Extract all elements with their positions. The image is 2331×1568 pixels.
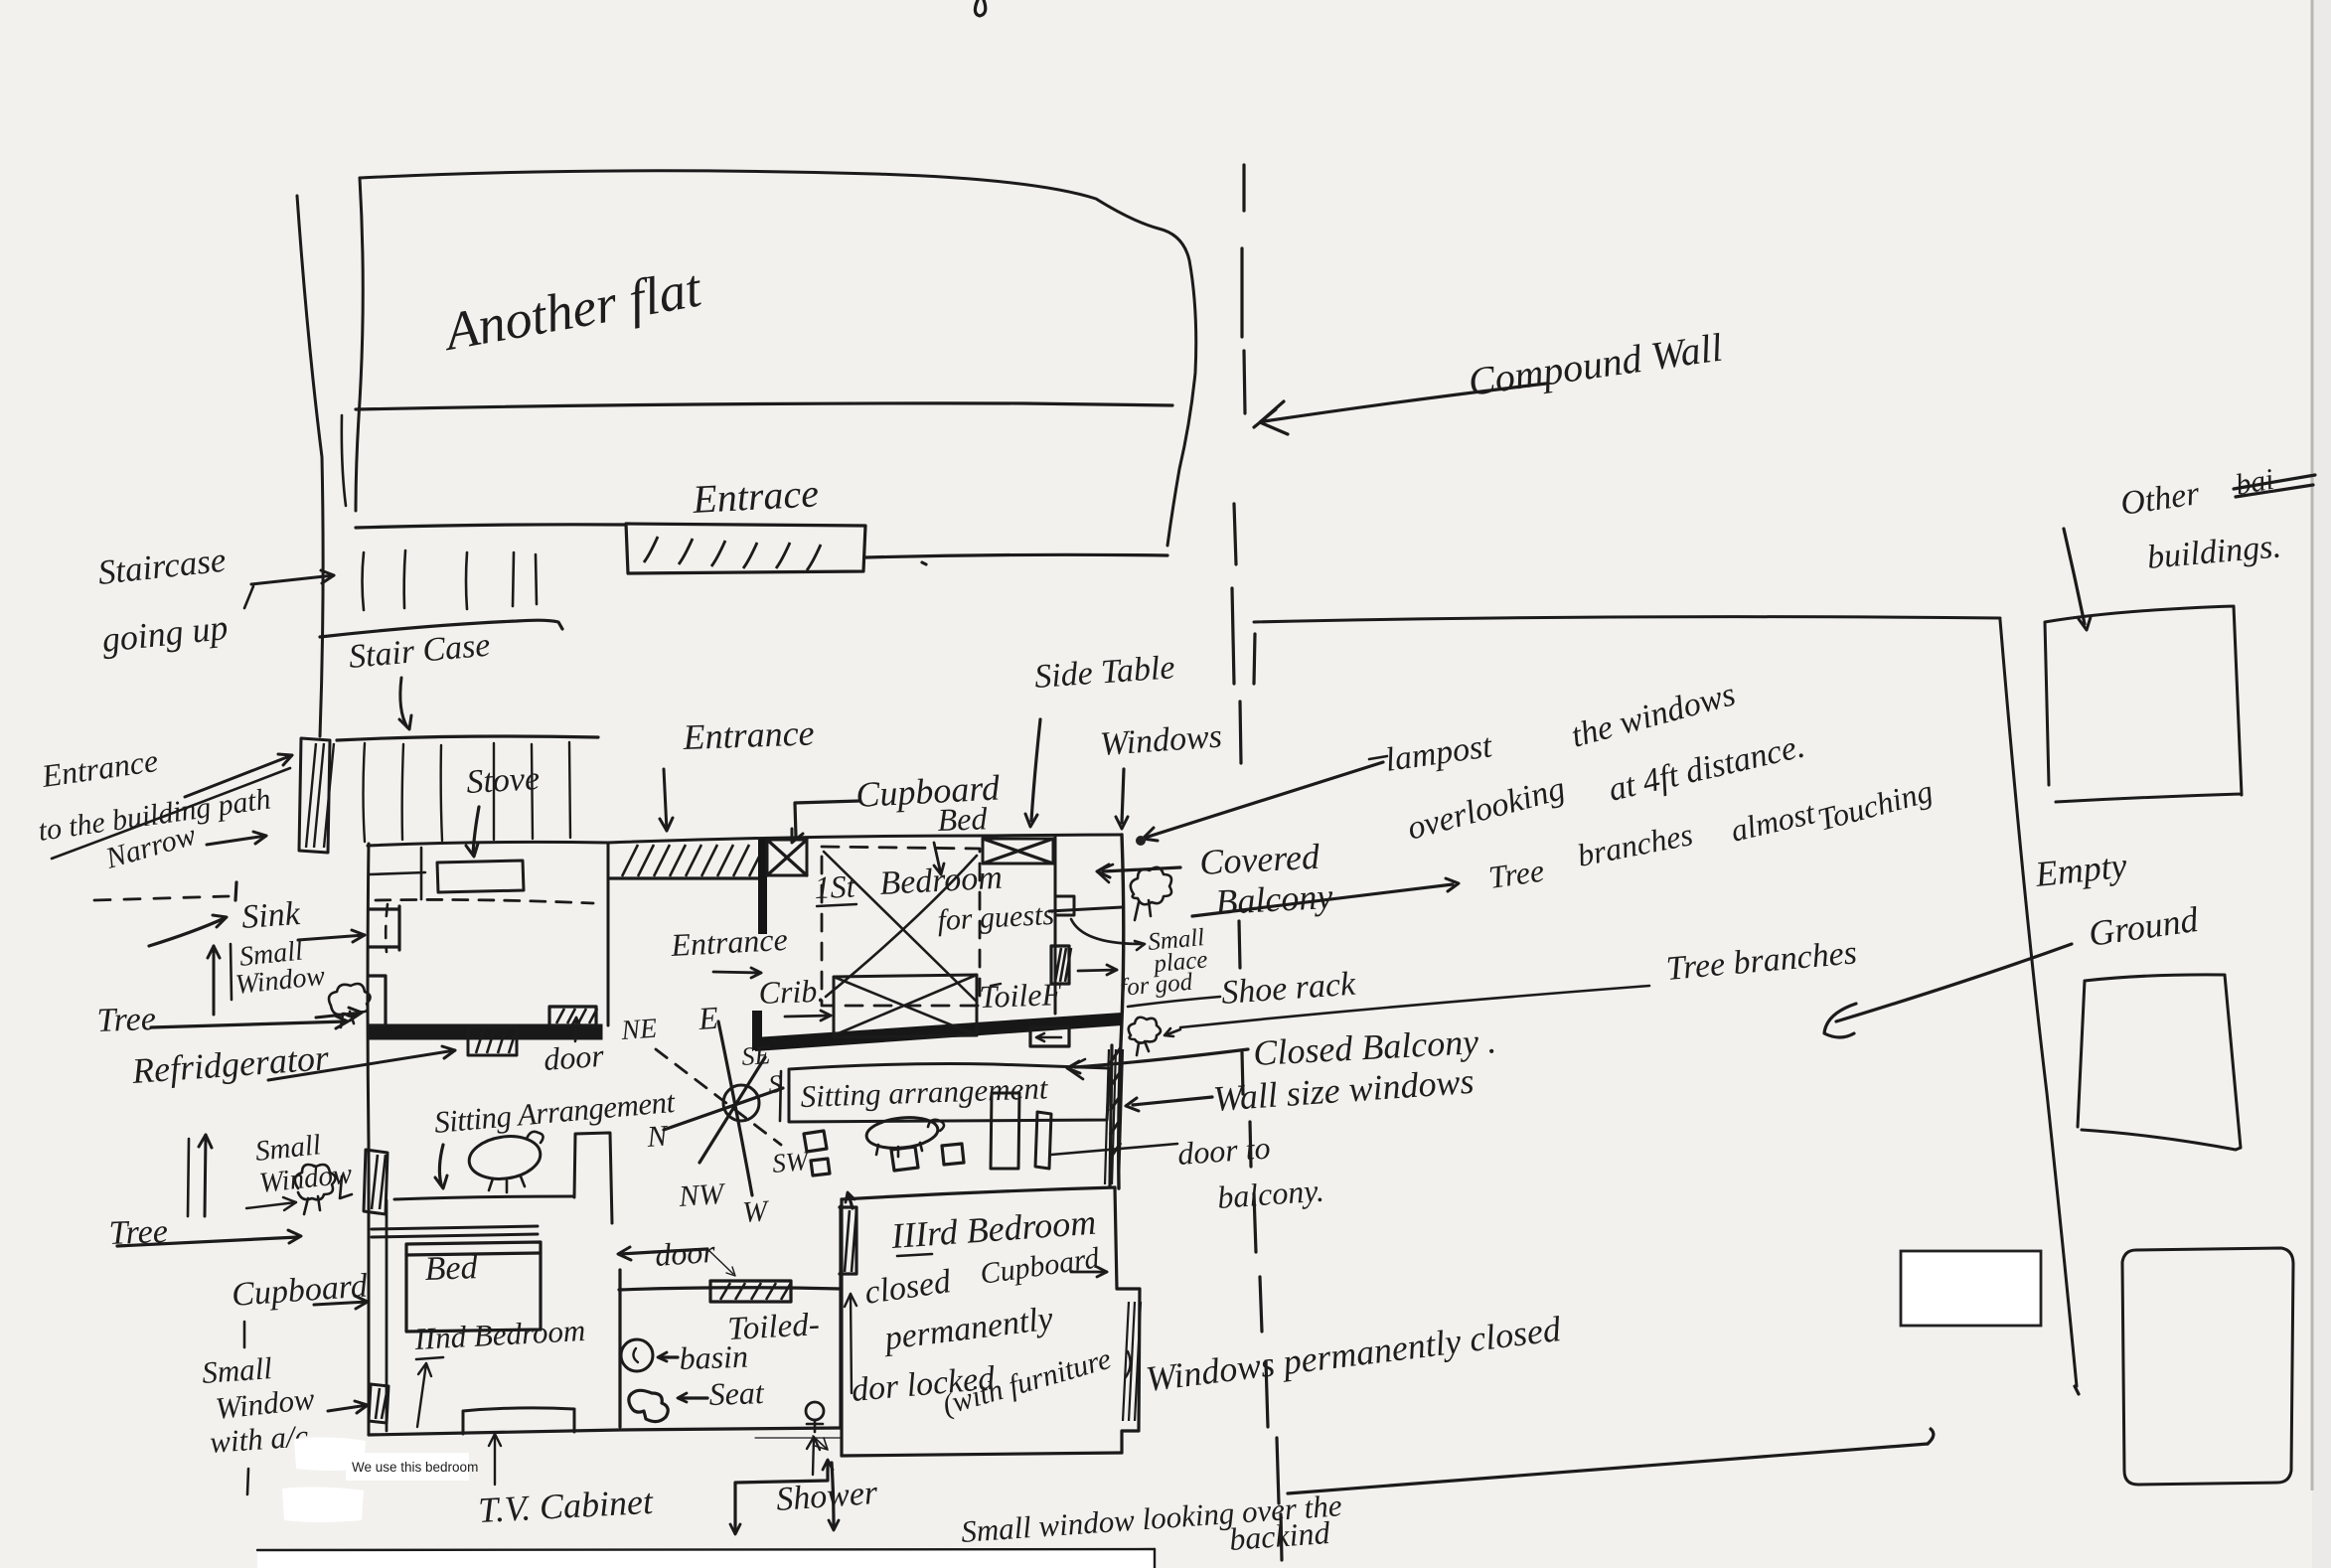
svg-text:door to: door to (1176, 1130, 1272, 1172)
svg-text:SE: SE (740, 1040, 771, 1071)
svg-text:door: door (543, 1037, 605, 1077)
svg-text:S: S (767, 1069, 782, 1099)
svg-text:Tree: Tree (1486, 853, 1546, 895)
svg-text:E: E (697, 1000, 719, 1036)
svg-text:balcony.: balcony. (1216, 1173, 1325, 1215)
svg-text:Entrace: Entrace (691, 470, 820, 522)
svg-text:Bedroom: Bedroom (878, 860, 1003, 902)
svg-text:Entrance: Entrance (669, 921, 788, 963)
svg-text:Entrance: Entrance (682, 712, 815, 757)
svg-text:Crib.: Crib. (758, 973, 826, 1011)
svg-text:Sink: Sink (240, 895, 302, 936)
svg-text:Bed: Bed (937, 800, 989, 838)
svg-text:basin: basin (679, 1338, 749, 1376)
svg-text:SW: SW (771, 1146, 812, 1178)
svg-text:for guests: for guests (937, 898, 1055, 937)
svg-text:Covered: Covered (1198, 837, 1321, 882)
svg-text:1St: 1St (814, 868, 856, 905)
svg-text:Bed: Bed (424, 1249, 479, 1288)
svg-text:Balcony: Balcony (1214, 876, 1333, 922)
svg-text:Small: Small (201, 1350, 273, 1390)
svg-text:Tree: Tree (96, 1001, 156, 1039)
svg-text:Stove: Stove (465, 760, 540, 801)
svg-text:We use this bedroom: We use this bedroom (352, 1460, 478, 1475)
svg-text:NE: NE (619, 1014, 658, 1046)
svg-text:Seat: Seat (708, 1374, 765, 1412)
svg-text:NW: NW (677, 1177, 727, 1213)
svg-text:ToileF: ToileF (979, 976, 1062, 1015)
